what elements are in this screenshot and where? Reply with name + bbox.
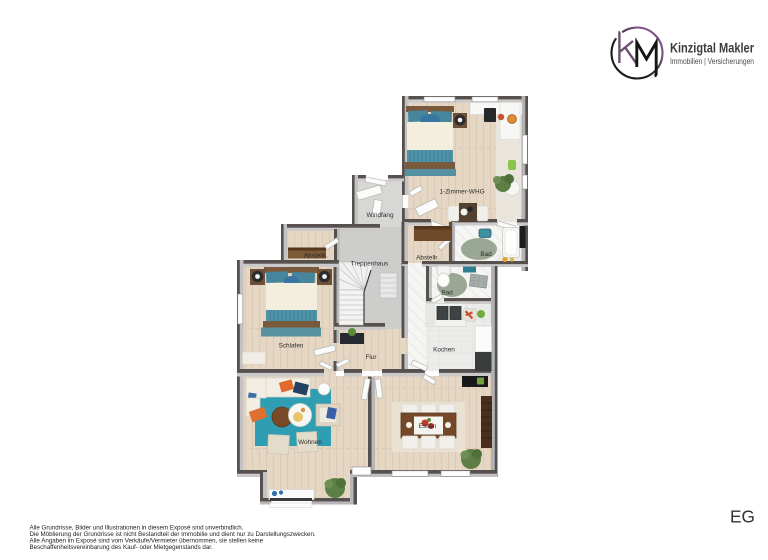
svg-text:Bad: Bad (480, 251, 492, 258)
svg-text:Essen: Essen (419, 423, 437, 430)
svg-text:Kochen: Kochen (433, 347, 455, 354)
svg-text:Wohnen: Wohnen (298, 439, 322, 446)
svg-text:Windfang: Windfang (367, 212, 394, 219)
svg-text:Kinzigtal Makler: Kinzigtal Makler (670, 41, 755, 56)
svg-text:EG: EG (730, 507, 755, 527)
svg-text:Schlafen: Schlafen (279, 343, 304, 350)
svg-text:Abstellr.: Abstellr. (416, 255, 439, 262)
svg-text:Beschaffenheitsvereinbarung de: Beschaffenheitsvereinbarung des Kauf- od… (30, 544, 214, 551)
svg-text:Bad: Bad (441, 290, 453, 297)
svg-text:Abstellk.: Abstellk. (304, 253, 328, 260)
svg-text:1-Zimmer-WHG: 1-Zimmer-WHG (439, 189, 484, 196)
svg-text:Flur: Flur (365, 354, 377, 361)
svg-text:Immobilien | Versicherungen: Immobilien | Versicherungen (670, 56, 754, 66)
svg-text:Treppenhaus: Treppenhaus (351, 261, 388, 268)
